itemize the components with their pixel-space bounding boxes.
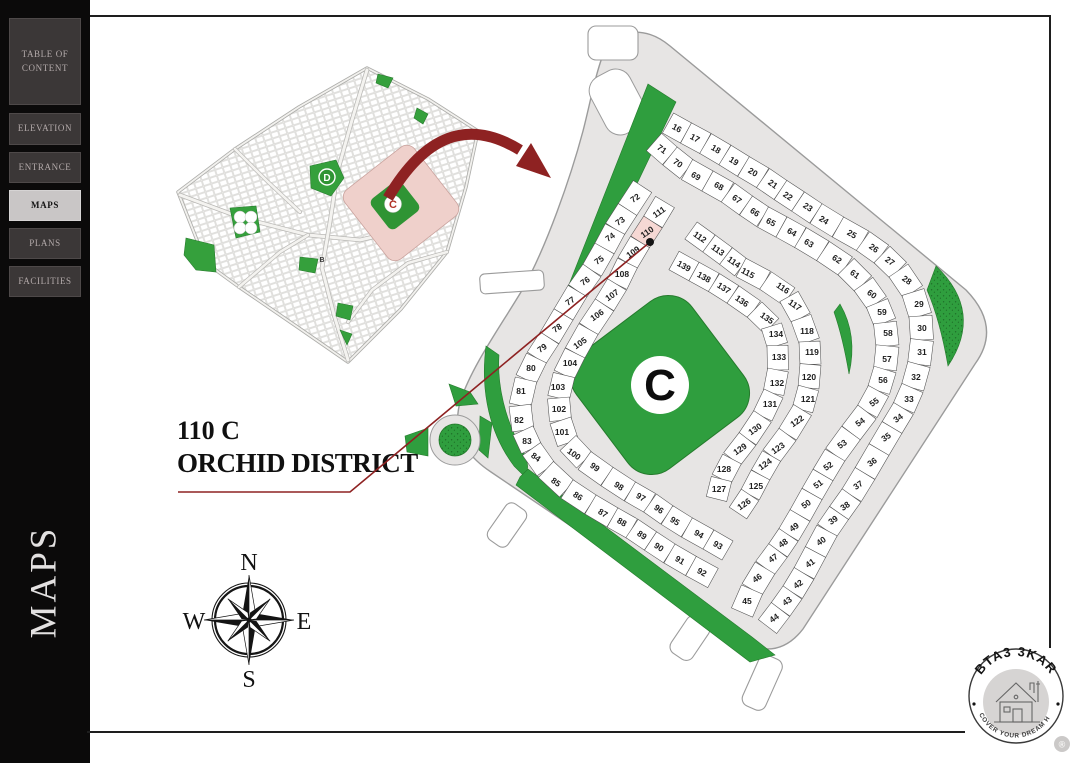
plot-number: 125: [749, 481, 763, 491]
district-detail-map: C 16171819202122232425262728293031323334…: [405, 26, 987, 713]
plot-number: 80: [526, 363, 536, 373]
plot-number: 131: [763, 399, 777, 409]
plot-number: 45: [742, 596, 752, 606]
plot-number: 133: [772, 352, 786, 362]
badge-dot-left: [972, 702, 975, 705]
plot-number: 33: [904, 394, 914, 404]
plot-number: 59: [877, 307, 887, 317]
compass-n: N: [240, 550, 257, 576]
compass-s: S: [242, 667, 255, 693]
overview-label-d: D: [323, 173, 330, 184]
plot-number: 29: [914, 299, 924, 309]
overview-label-c: C: [389, 199, 397, 211]
compass-star: [204, 575, 294, 665]
plot-number: 82: [514, 415, 524, 425]
plot-number: 32: [911, 372, 921, 382]
compass-w: W: [183, 609, 206, 635]
highlight-plot-dot: [646, 238, 654, 246]
plot-number: 127: [712, 484, 726, 494]
plot-number: 108: [615, 269, 629, 279]
maps-brochure-page: TABLE OF CONTENT ELEVATION ENTRANCE MAPS…: [0, 0, 1080, 763]
registered-mark: ®: [1059, 740, 1066, 750]
plot-number: 118: [800, 326, 814, 336]
badge-dot-right: [1056, 702, 1059, 705]
plot-number: 81: [516, 386, 526, 396]
compass-e: E: [297, 609, 312, 635]
plot-number: 83: [522, 436, 532, 446]
maps-page-canvas: C D B: [0, 0, 1080, 763]
overview-masterplan-map: C D B: [178, 68, 478, 362]
plot-number: 132: [770, 378, 784, 388]
plot-number: 121: [801, 394, 815, 404]
plot-number: 119: [805, 347, 819, 357]
overview-label-b: B: [319, 257, 324, 264]
plot-number: 57: [882, 354, 892, 364]
plot-number: 134: [769, 329, 783, 339]
roundabout: [430, 415, 480, 465]
plot-number: 103: [551, 382, 565, 392]
plot-number: 104: [563, 358, 577, 368]
park-label: C: [644, 361, 676, 410]
plot-number: 101: [555, 427, 569, 437]
plot-number: 56: [878, 375, 888, 385]
plot-number: 128: [717, 464, 731, 474]
plot-number: 102: [552, 404, 566, 414]
plot-number: 58: [883, 328, 893, 338]
plot-number: 31: [917, 347, 927, 357]
plot-number: 30: [917, 323, 927, 333]
compass-rose: N S E W: [183, 550, 312, 693]
plot-number: 120: [802, 372, 816, 382]
